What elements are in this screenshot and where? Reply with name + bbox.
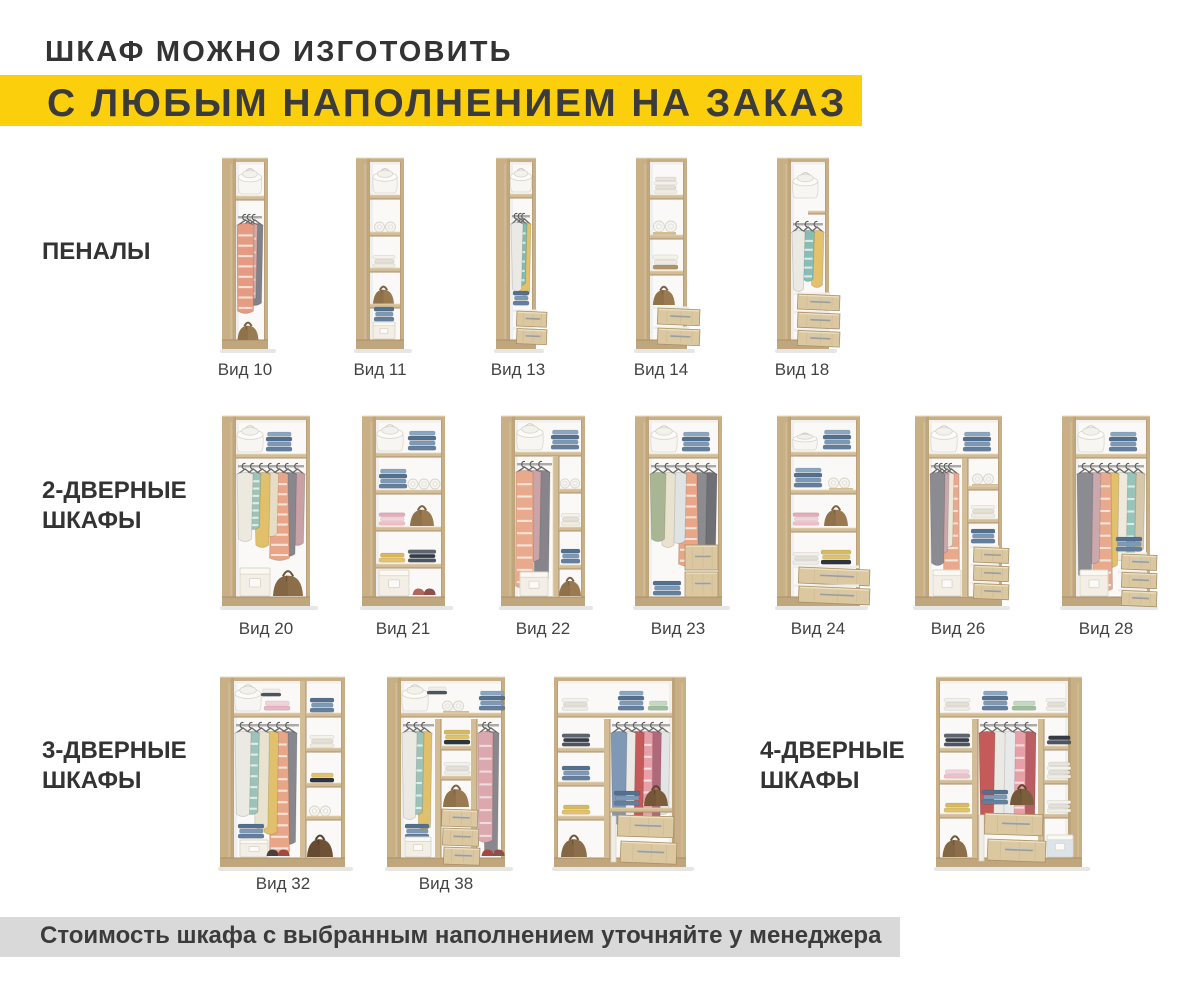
svg-text:С ЛЮБЫМ НАПОЛНЕНИЕМ НА ЗАКАЗ: С ЛЮБЫМ НАПОЛНЕНИЕМ НА ЗАКАЗ <box>47 82 847 125</box>
svg-text:Стоимость шкафа с выбранным на: Стоимость шкафа с выбранным наполнением … <box>40 922 882 949</box>
svg-text:Вид 22: Вид 22 <box>516 619 570 638</box>
svg-text:Вид 14: Вид 14 <box>634 360 688 379</box>
svg-text:Вид 38: Вид 38 <box>419 874 473 893</box>
svg-text:Вид 26: Вид 26 <box>931 619 985 638</box>
svg-text:Вид 11: Вид 11 <box>353 360 406 379</box>
svg-text:Вид 13: Вид 13 <box>491 360 545 379</box>
svg-text:Вид 32: Вид 32 <box>256 874 310 893</box>
svg-text:Вид 24: Вид 24 <box>791 619 845 638</box>
svg-text:Вид 28: Вид 28 <box>1079 619 1133 638</box>
svg-text:Вид 21: Вид 21 <box>376 619 430 638</box>
svg-text:ШКАФ МОЖНО ИЗГОТОВИТЬ: ШКАФ МОЖНО ИЗГОТОВИТЬ <box>45 36 513 68</box>
svg-text:ПЕНАЛЫ: ПЕНАЛЫ <box>42 238 151 265</box>
svg-text:Вид 18: Вид 18 <box>775 360 829 379</box>
svg-text:Вид 10: Вид 10 <box>218 360 272 379</box>
svg-text:Вид 23: Вид 23 <box>651 619 705 638</box>
svg-text:Вид 20: Вид 20 <box>239 619 293 638</box>
